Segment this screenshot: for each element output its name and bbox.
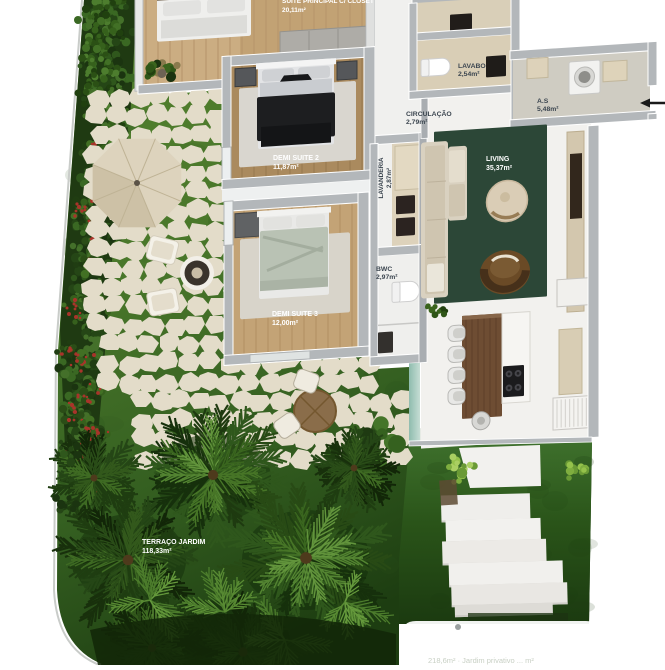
svg-text:2,79m²: 2,79m² — [406, 119, 428, 126]
svg-text:A.S: A.S — [537, 98, 549, 105]
svg-text:LAVABO: LAVABO — [458, 63, 486, 70]
svg-text:2,97m²: 2,97m² — [376, 274, 398, 281]
svg-text:DEMI SUITE 2: DEMI SUITE 2 — [273, 155, 319, 162]
svg-text:118,33m²: 118,33m² — [142, 548, 172, 555]
svg-text:218,6m² · Jardim privativo ...: 218,6m² · Jardim privativo ... m² — [428, 656, 534, 665]
svg-text:2,87m²: 2,87m² — [386, 168, 393, 188]
svg-text:LAVANDERIA: LAVANDERIA — [378, 157, 385, 198]
svg-text:12,00m²: 12,00m² — [272, 320, 299, 327]
svg-text:SUITE PRINCIPAL C/ CLOSET: SUITE PRINCIPAL C/ CLOSET — [282, 0, 374, 5]
svg-text:DEMI SUITE 3: DEMI SUITE 3 — [272, 311, 318, 318]
svg-text:2,54m²: 2,54m² — [458, 71, 480, 78]
svg-text:5,48m²: 5,48m² — [537, 106, 559, 113]
svg-text:BWC: BWC — [376, 266, 392, 273]
svg-text:20,11m²: 20,11m² — [282, 7, 307, 14]
svg-text:CIRCULAÇÃO: CIRCULAÇÃO — [406, 109, 452, 118]
svg-text:TERRAÇO JARDIM: TERRAÇO JARDIM — [142, 539, 206, 546]
svg-text:LIVING: LIVING — [486, 156, 510, 163]
svg-text:11,87m²: 11,87m² — [273, 164, 299, 171]
svg-text:35,37m²: 35,37m² — [486, 165, 513, 172]
